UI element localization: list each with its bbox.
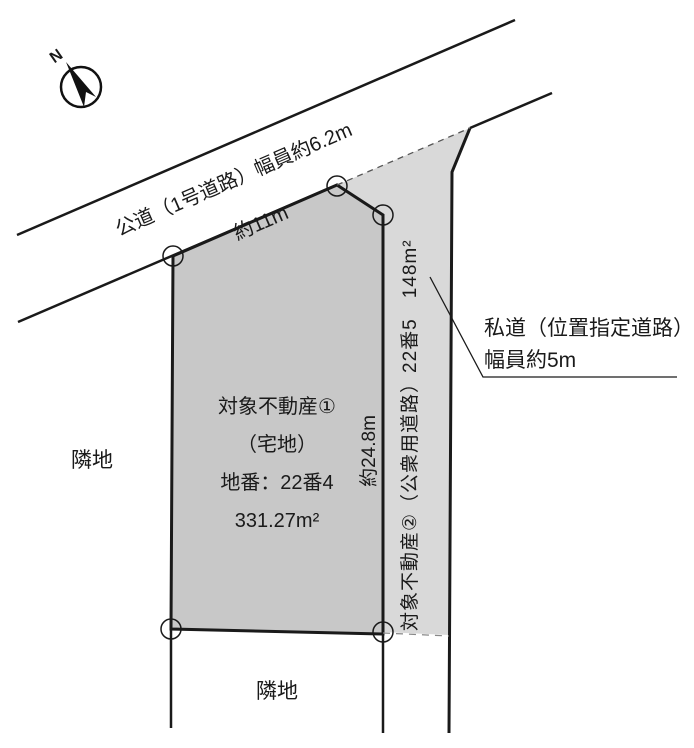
plot1-lot-number: 地番：22番4	[170, 464, 384, 502]
private-road-callout-line2: 幅員約5m	[484, 349, 576, 373]
private-road-callout-line1: 私道（位置指定道路）	[484, 317, 694, 341]
neighbor-land-left-label: 隣地	[70, 449, 114, 473]
plot1-title: 対象不動産①	[170, 388, 384, 426]
land-plot-diagram: N 公道（1号道路）幅員約6.2m 約11m 約24.8m 対象不動産②（公衆用…	[0, 0, 694, 748]
plot2-right-boundary-line	[449, 128, 470, 733]
plot2-label: 対象不動産②（公衆用道路）22番5 148m²	[399, 233, 423, 631]
public-road-lower-line-right	[470, 93, 552, 128]
diagram-shapes	[0, 0, 694, 748]
plot1-land-type: （宅地）	[170, 426, 384, 464]
plot1-text-block: 対象不動産① （宅地） 地番：22番4 331.27m²	[170, 388, 384, 540]
plot1-area: 331.27m²	[170, 502, 384, 540]
neighbor-land-bottom-label: 隣地	[255, 680, 299, 704]
